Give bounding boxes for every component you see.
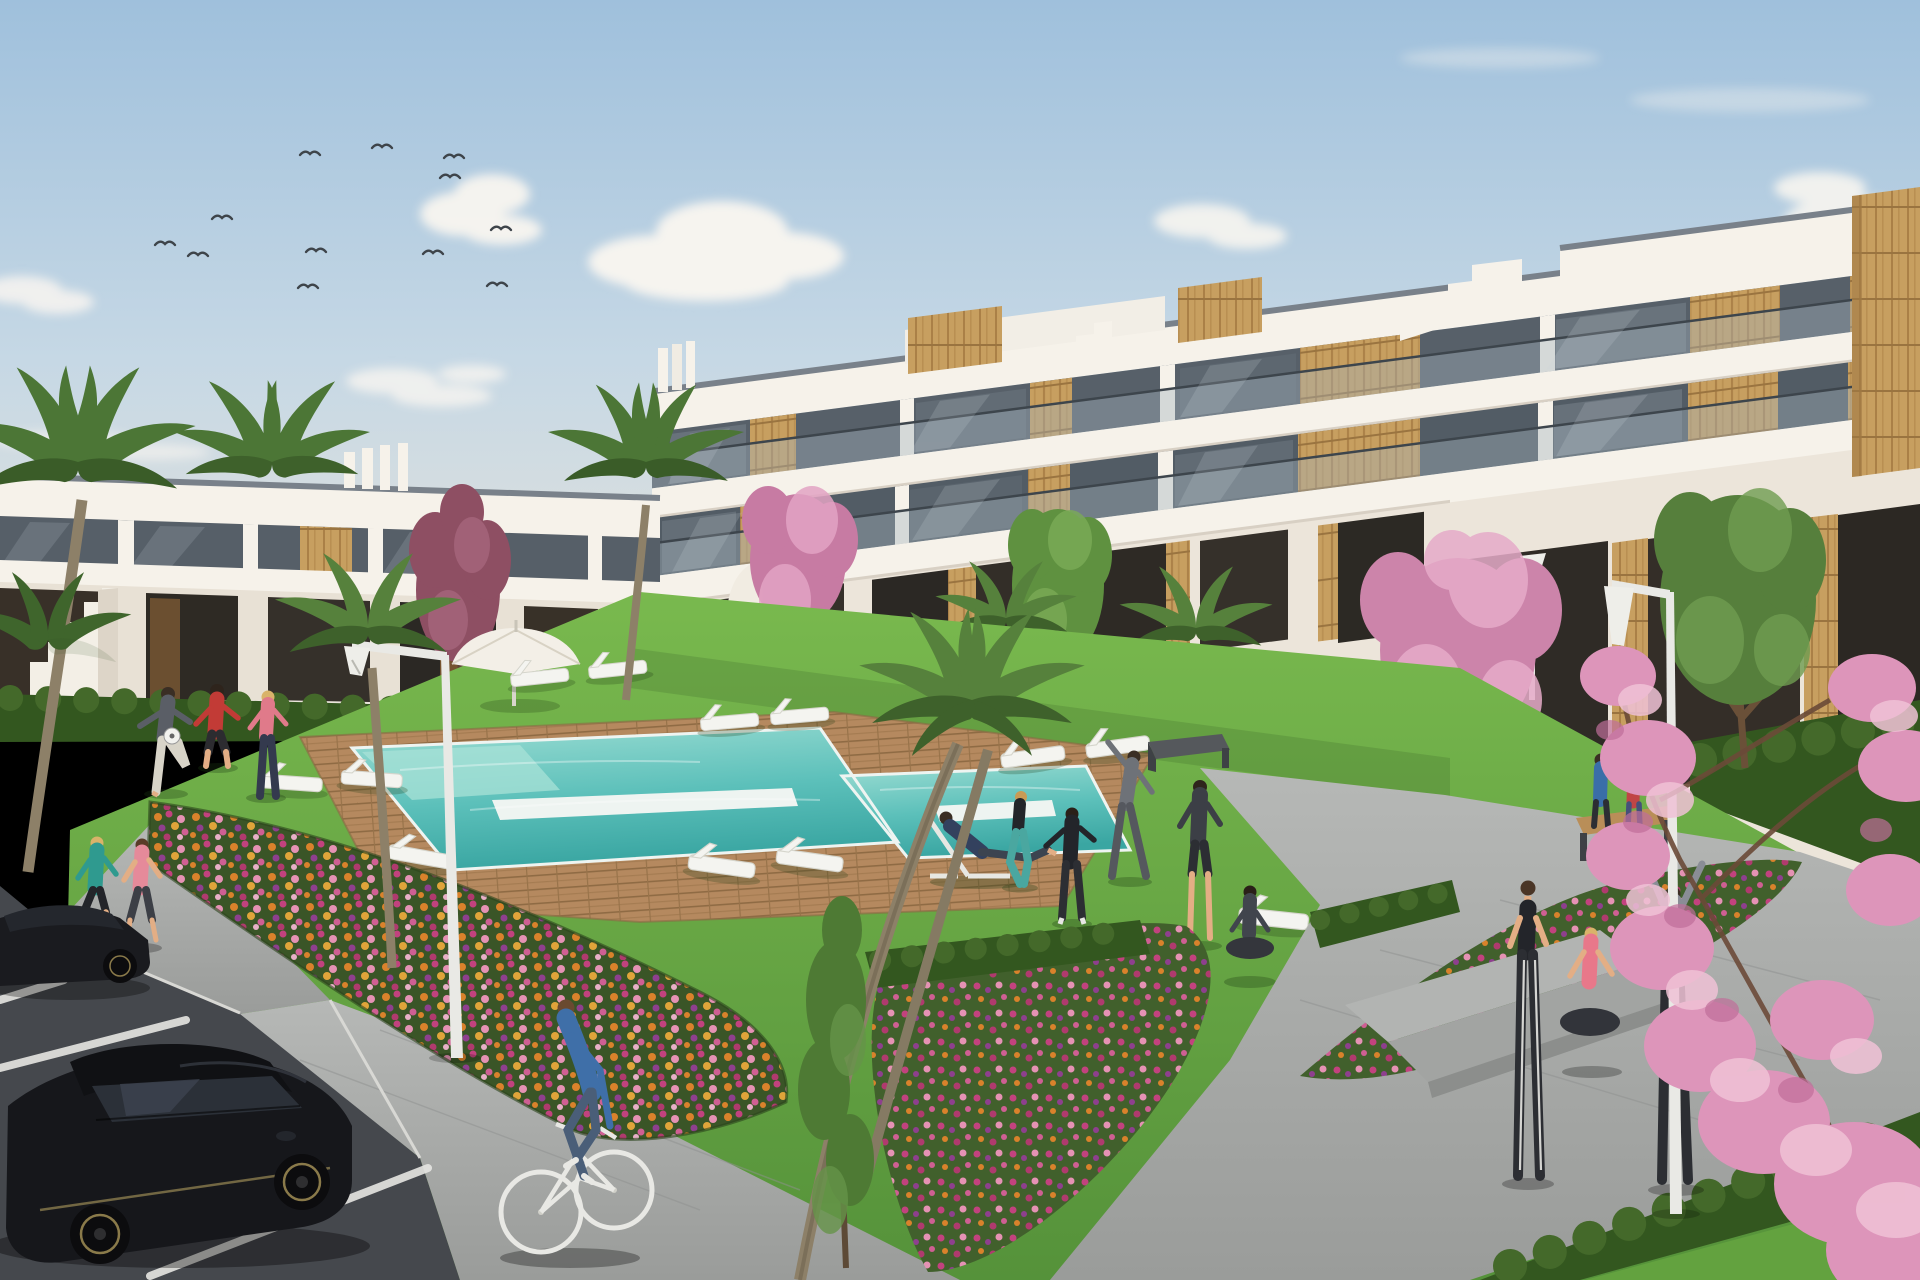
render-scene — [0, 0, 1920, 1280]
render-canvas — [0, 0, 1920, 1280]
